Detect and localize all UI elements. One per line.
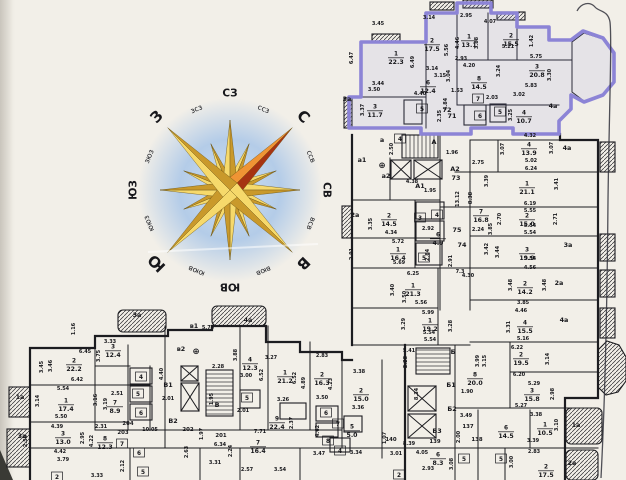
room-area: 14.5 (498, 433, 513, 440)
core-label: 3а (564, 241, 573, 249)
dimension-label: 2.28 (403, 355, 409, 368)
dimension-label: 3.01 (390, 451, 403, 457)
room-number: 9 (275, 417, 279, 423)
room-number: 1 (467, 35, 471, 41)
dimension-label: 2.91 (349, 247, 355, 260)
dimension-label: 3.79 (57, 457, 70, 463)
room-number: 1 (394, 52, 398, 58)
room-number: 7 (476, 97, 480, 103)
dimension-label: 5.74 (202, 325, 215, 331)
dimension-label: 3.88 (474, 36, 480, 49)
dimension-label: 2.24 (228, 444, 234, 457)
dimension-label: 3.50 (402, 290, 408, 303)
core-label: А1 (415, 182, 424, 190)
core-label: 73 (452, 174, 461, 182)
dimension-label: 2.31 (95, 424, 108, 430)
dimension-label: 5.56 (444, 43, 450, 56)
dimension-label: 3.41 (554, 177, 560, 190)
dimension-label: 5.54 (423, 330, 436, 336)
room-number: 3 (535, 65, 539, 71)
dimension-label: 3.31 (209, 460, 222, 466)
dimension-label: 3.14 (423, 15, 436, 21)
room-number: 3 (418, 216, 422, 222)
dimension-label: 8.39 (403, 441, 416, 447)
room-number: 5 (136, 392, 140, 398)
dimension-label: 4.56 (524, 265, 537, 271)
dimension-label: 8.34 (414, 387, 420, 400)
dimension-label: 5.21 (502, 44, 515, 50)
dimension-label: 6.45 (79, 349, 92, 355)
dimension-label: 4.62 (315, 424, 321, 437)
room-area: 17.4 (58, 406, 74, 413)
dimension-label: 2.71 (553, 212, 559, 225)
room-number: 2 (430, 39, 434, 45)
dimension-label: 3.24 (496, 64, 502, 77)
dimension-label: 3.42 (484, 242, 490, 255)
dimension-label: 4.46 (455, 36, 461, 49)
dimension-label: 2.98 (550, 387, 556, 400)
dimension-label: 10.05 (142, 427, 158, 433)
dimension-label: 2.91 (448, 254, 454, 267)
dimension-label: 1.16 (71, 322, 77, 335)
dimension-label: 3.33 (91, 473, 104, 479)
core-label: Б3 (432, 427, 441, 435)
room-number: 2 (519, 353, 523, 359)
core-label: 3а (133, 311, 142, 319)
dimension-label: 2.93 (422, 466, 435, 472)
dimension-label: 5.99 (422, 310, 435, 316)
room-area: 19.5 (513, 360, 528, 367)
core-label: В2 (168, 417, 177, 425)
room-number: 1 (428, 319, 432, 325)
dimension-label: 1.97 (199, 427, 205, 440)
dimension-label: 5.72 (392, 239, 405, 245)
dimension-label: 3.35 (368, 217, 374, 230)
dimension-label: 2.50 (389, 142, 395, 155)
room-area: 12.3 (97, 444, 112, 451)
dimension-label: 5.56 (415, 300, 428, 306)
dimension-label: 1.95 (424, 188, 437, 194)
core-label: 2а (351, 211, 360, 219)
dimension-label: 4.05 (416, 450, 429, 456)
core-label: а (380, 136, 384, 144)
dimension-label: 3.54 (274, 467, 287, 473)
dimension-label: 13.12 (455, 191, 461, 207)
dimension-label: 3.25 (508, 108, 514, 121)
room-area: 14.5 (471, 84, 486, 91)
room-area: 14.2 (517, 289, 532, 296)
room-area: 20.8 (529, 72, 544, 79)
dimension-label: 3.39 (484, 174, 490, 187)
core-label: 2а (555, 279, 564, 287)
dimension-label: 3.39 (527, 438, 540, 444)
dimension-label: 3.15 (482, 354, 488, 367)
room-area: 22.4 (269, 424, 285, 431)
core-label: Б1 (446, 381, 455, 389)
room-number: 1 (396, 248, 400, 254)
dimension-label: 3.07 (500, 142, 506, 155)
dimension-label: 6.42 (71, 377, 84, 383)
room-area: 15.0 (353, 396, 369, 403)
core-label: 74 (458, 241, 467, 249)
dimension-label: 4.20 (463, 63, 476, 69)
room-number: 7 (120, 442, 124, 448)
room-area: 22.3 (388, 59, 403, 66)
circled-plus-icon: ⊕ (378, 161, 385, 171)
room-number: 7 (256, 441, 260, 447)
core-label: 204 (122, 421, 134, 427)
room-area: 16.4 (250, 448, 266, 455)
dimension-label: 3.14 (545, 352, 551, 365)
room-number: 4 (248, 358, 252, 364)
room-number: 2 (320, 373, 324, 379)
room-number: 8 (477, 77, 481, 83)
room-area: 21.1 (519, 189, 534, 196)
room-number: 4 (139, 375, 143, 381)
room-number: 6 (426, 81, 430, 87)
dimension-label: 3.45 (39, 360, 45, 373)
dimension-label: 2.95 (80, 431, 86, 444)
dimension-label: 5.02 (525, 158, 538, 164)
dimension-label: 3.50 (368, 87, 381, 93)
scanned-floorplan-page: СЗссзСссвСВвсвВвювЮВюювЮююзЮЗзюзЗзсз 122… (0, 0, 626, 480)
compass-rose: СЗссзСссвСВвсвВвювЮВюювЮююзЮЗзюзЗзсз (128, 88, 333, 293)
dimension-label: 3.14 (35, 394, 41, 407)
dimension-label: 5.16 (517, 336, 530, 342)
core-label: 137 (462, 424, 474, 430)
dimension-label: 3.14 (426, 66, 439, 72)
core-label: 4а (549, 102, 558, 110)
core-label: в2 (177, 345, 186, 353)
dimension-label: 5.75 (530, 54, 543, 60)
room-number: 5 (245, 396, 249, 402)
dimension-label: 2.00 (456, 430, 462, 443)
staircase (416, 348, 450, 374)
core-label: 4а (244, 316, 253, 324)
dimension-label: 2.24 (472, 227, 485, 233)
room-area: 10.5 (537, 430, 552, 437)
room-number: 6 (478, 114, 482, 120)
dimension-label: 3.46 (48, 359, 54, 372)
dimension-label: 5.54 (424, 337, 437, 343)
dimension-label: 4.40 (414, 91, 427, 97)
room-number: 5 (498, 110, 502, 116)
core-label: 202 (182, 427, 194, 433)
dimension-label: 2.92 (422, 226, 435, 232)
room-number: 4 (522, 111, 526, 117)
dimension-label: 3.08 (449, 457, 455, 470)
dimension-label: 2.83 (528, 449, 541, 455)
dimension-label: 6.52 (259, 368, 265, 381)
room-number: 8 (103, 437, 107, 443)
room-number: 6 (436, 233, 440, 239)
room-number: 2 (387, 214, 391, 220)
room-number: 1 (411, 284, 415, 290)
room-number: 3 (530, 389, 534, 395)
dimension-label: 3.50 (316, 395, 329, 401)
dimension-label: 3.28 (448, 319, 454, 332)
room-number: 6 (137, 451, 141, 457)
room-area: 5.0 (347, 432, 359, 439)
room-number: 4 (338, 449, 342, 455)
dimension-label: 5.50 (55, 414, 68, 420)
dimension-label: 2.28 (212, 364, 225, 370)
room-area: 17.5 (424, 46, 439, 53)
room-number: 5 (350, 425, 354, 431)
dimension-label: 3.31 (506, 320, 512, 333)
dimension-label: 5.54 (524, 230, 537, 236)
dimension-label: 5.69 (393, 260, 406, 266)
core-label: 4а (563, 144, 572, 152)
dimension-label: 3.02 (513, 92, 526, 98)
dimension-label: 5.55 (524, 208, 537, 214)
dimension-label: 7.71 (254, 429, 267, 435)
core-label: а2 (382, 172, 391, 180)
room-number: 5 (141, 470, 145, 476)
room-number: 4 (398, 137, 402, 143)
room-number: 4 (527, 143, 531, 149)
dimension-label: 3.00 (509, 455, 515, 468)
dimension-label: 2.37 (289, 416, 295, 429)
room-area: 8.9 (110, 408, 121, 415)
dimension-label: 3.30 (547, 68, 553, 81)
dimension-label: 5.54 (524, 223, 537, 229)
room-number: 6 (436, 453, 440, 459)
room-number: 6 (139, 411, 143, 417)
dimension-label: 3.48 (542, 278, 548, 291)
room-number: 3 (111, 345, 115, 351)
dimension-label: 4.07 (484, 19, 497, 25)
room-number: 3 (61, 432, 65, 438)
dimension-label: 2.84 (425, 248, 431, 261)
room-number: 8 (473, 373, 477, 379)
dimension-label: 3.10 (554, 418, 560, 431)
room-number: 6 (324, 411, 328, 417)
core-label: 2а (568, 459, 577, 467)
room-area: 10.7 (516, 118, 531, 125)
core-label: В1 (163, 381, 172, 389)
dimension-label: 3.15 (434, 73, 447, 79)
dimension-label: 4.89 (301, 376, 307, 389)
dimension-label: 6.22 (511, 345, 524, 351)
core-label: 140 (385, 437, 397, 443)
dimension-label: 4.34 (385, 230, 398, 236)
dimension-label: 3.27 (265, 355, 278, 361)
dimension-label: 3.37 (360, 103, 366, 116)
dimension-label: 4.32 (524, 133, 537, 139)
room-number: 3 (525, 248, 529, 254)
dimension-label: 2.75 (472, 160, 485, 166)
dimension-label: 3.85 (517, 300, 530, 306)
room-area: 12.3 (242, 365, 257, 372)
dimension-label: 4.42 (54, 449, 67, 455)
room-area: 15.5 (517, 328, 532, 335)
room-number: 1 (543, 423, 547, 429)
core-label: в1 (190, 322, 199, 330)
dimension-label: 5.54 (57, 386, 70, 392)
dimension-label: 6.52 (292, 371, 298, 384)
dimension-label: 3.99 (475, 354, 481, 367)
core-label: 3а (343, 95, 352, 103)
room-number: 2 (544, 465, 548, 471)
dimension-label: 2.01 (162, 396, 175, 402)
core-label: 203 (117, 430, 129, 436)
dimension-label: 3.34 (350, 450, 363, 456)
room-number: 1 (525, 182, 529, 188)
dimension-label: 3.19 (103, 397, 109, 410)
dimension-label: 3.07 (549, 141, 555, 154)
dimension-label: 4.23 (328, 377, 334, 390)
dimension-label: 3.88 (233, 348, 239, 361)
dimension-label: 3.49 (460, 413, 473, 419)
room-number: 1 (283, 371, 287, 377)
core-label: Б (451, 348, 456, 356)
dimension-label: 6.47 (349, 51, 355, 64)
room-number: 2 (523, 282, 527, 288)
core-label: 72 (443, 106, 452, 114)
dimension-label: 4.40 (159, 367, 165, 380)
room-number: 6 (504, 426, 508, 432)
dimension-label: 2.63 (184, 445, 190, 458)
dimension-label: 2.95 (460, 13, 473, 19)
circled-plus-icon: ⊕ (192, 347, 199, 357)
room-number: 8 (326, 439, 330, 445)
dimension-label: 3.75 (96, 349, 102, 362)
dimension-label: 4.30 (462, 273, 475, 279)
compass-label: ЮЗ (128, 180, 140, 200)
dimension-label: 6.34 (214, 442, 227, 448)
dimension-label: 3.85 (488, 222, 494, 235)
room-number: 4 (523, 321, 527, 327)
dimension-label: 3.16 (93, 393, 99, 406)
core-label: 138 (471, 437, 483, 443)
core-label: 1а (572, 421, 581, 429)
room-area: 15.8 (524, 396, 539, 403)
dimension-label: 6.49 (410, 55, 416, 68)
dimension-label: 3.04 (446, 69, 452, 82)
dimension-label: 6.20 (513, 372, 526, 378)
compass-label: ЮВ (220, 280, 240, 292)
room-number: 3 (373, 105, 377, 111)
dimension-label: 6.19 (524, 201, 537, 207)
dimension-label: 3.45 (372, 21, 385, 27)
dimension-label: 4.46 (515, 308, 528, 314)
core-label: 4а (560, 316, 569, 324)
room-area: 17.5 (538, 472, 553, 479)
core-label: а1 (358, 156, 367, 164)
room-number: 7 (113, 401, 117, 407)
core-label: А (432, 138, 437, 146)
dimension-label: 5.83 (525, 83, 538, 89)
dimension-label: 3.38 (530, 412, 543, 418)
dimension-label: 2.01 (237, 408, 250, 414)
dimension-label: 5.29 (528, 381, 541, 387)
room-number: 5 (462, 457, 466, 463)
room-number: 2 (525, 214, 529, 220)
room-area: 4.9 (433, 240, 444, 247)
dimension-label: 2.51 (111, 391, 124, 397)
dimension-label: 3.47 (313, 451, 326, 457)
core-label: 201 (215, 433, 227, 439)
core-label: 1а (16, 393, 25, 401)
dimension-label: 8.38 (468, 191, 474, 204)
dimension-label: 2.70 (497, 212, 503, 225)
room-number: 5 (420, 107, 424, 113)
dimension-label: 3.00 (240, 373, 253, 379)
core-label: А2 (450, 165, 459, 173)
dimension-label: 3.36 (352, 405, 365, 411)
dimension-label: 6.24 (525, 166, 538, 172)
room-number: 2 (55, 475, 59, 480)
core-label: Б2 (447, 405, 456, 413)
core-label: В (215, 401, 220, 409)
room-area: 12.4 (105, 352, 121, 359)
room-number: 4 (435, 213, 439, 219)
room-number: 2 (397, 473, 401, 479)
dimension-label: 5.41 (403, 348, 416, 354)
core-label: 139 (429, 439, 441, 445)
room-area: 20.0 (467, 380, 483, 387)
dimension-label: 1.90 (461, 389, 474, 395)
dimension-label: 2.03 (486, 95, 499, 101)
room-area: 11.7 (367, 112, 382, 119)
room-number: 2 (359, 389, 363, 395)
dimension-label: 1.53 (451, 88, 464, 94)
dimension-label: 4.39 (51, 424, 64, 430)
dimension-label: 1.96 (446, 150, 459, 156)
core-label: 3а (18, 432, 27, 440)
room-number: 2 (72, 359, 76, 365)
dimension-label: 3.40 (390, 283, 396, 296)
room-number: 5 (499, 457, 503, 463)
compass-label: СЗ (222, 88, 237, 100)
room-area: 14.5 (381, 221, 396, 228)
dimension-label: 3.48 (508, 278, 514, 291)
room-area: 21.2 (277, 378, 292, 385)
dimension-label: 3.44 (495, 245, 501, 258)
room-number: 1 (64, 399, 68, 405)
room-area: 13.9 (521, 150, 536, 157)
dimension-label: 2.83 (316, 353, 329, 359)
floorplan-drawing: СЗссзСссвСВвсвВвювЮВюювЮююзЮЗзюзЗзсз 122… (0, 0, 626, 480)
room-number: 7 (479, 210, 483, 216)
dimension-label: 2.12 (120, 459, 126, 472)
dimension-label: 5.27 (515, 403, 528, 409)
dimension-label: 1.42 (529, 34, 535, 47)
dimension-label: 2.57 (241, 467, 254, 473)
dimension-label: 4.22 (89, 434, 95, 447)
dimension-label: 3.29 (401, 317, 407, 330)
room-number: 2 (509, 34, 513, 40)
compass-label: СВ (320, 182, 332, 198)
dimension-label: 2.93 (455, 56, 468, 62)
core-label: 75 (453, 226, 462, 234)
room-area: 13.0 (55, 439, 71, 446)
dimension-label: 3.33 (104, 339, 117, 345)
dimension-label: 6.25 (407, 271, 420, 277)
dimension-label: 3.26 (277, 397, 290, 403)
room-area: 22.2 (66, 366, 81, 373)
dimension-label: 3.38 (353, 369, 366, 375)
room-area: 16.8 (473, 217, 488, 224)
room-number: 7 (336, 422, 340, 428)
dimension-label: 5.54 (524, 256, 537, 262)
